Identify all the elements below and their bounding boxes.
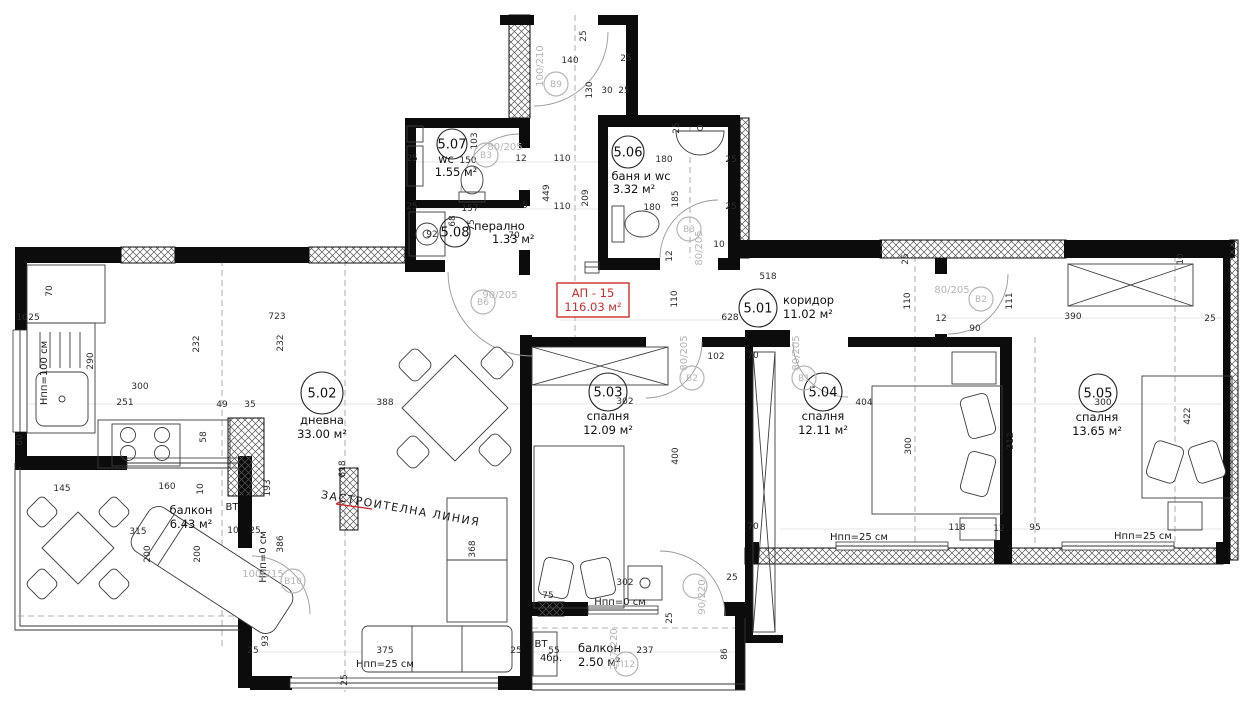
room-area: 1.33 м² (492, 232, 535, 246)
door-marker-id: B2 (686, 374, 698, 384)
room-name: дневна (300, 413, 344, 427)
dimension-label: 70 (45, 285, 55, 297)
room-name: перално (474, 219, 525, 233)
annotation-label: ВТ (226, 502, 240, 513)
dimension-label: 390 (1064, 312, 1081, 322)
door-marker-size: 80/205 (679, 335, 690, 370)
dimension-label: 368 (468, 540, 478, 557)
dimension-label: 25 (247, 646, 258, 656)
dimension-label: 90 (969, 324, 981, 334)
annotation-label: Нпп=25 см (830, 532, 888, 543)
door-marker-size: 227/220 (609, 628, 620, 670)
dimension-label: 25 (340, 674, 350, 685)
dimension-label: 386 (276, 535, 286, 552)
dimension-label: 10 (713, 240, 725, 250)
dimension-label: 209 (581, 189, 591, 206)
dimension-label: 110 (670, 290, 680, 307)
door-marker-size: 90/205 (482, 290, 517, 301)
dimension-label: 290 (86, 352, 96, 369)
room-number: 5.02 (308, 387, 337, 402)
dimension-label: 111 (1005, 292, 1015, 309)
floor-plan-drawing: АП - 15 116.03 м² 5186281101401303025252… (0, 0, 1240, 720)
room-name: балкон (170, 503, 213, 517)
dimension-label: 315 (129, 527, 146, 537)
dimension-label: 110 (553, 202, 570, 212)
dimension-label: 25 (406, 202, 417, 212)
dimension-label: 60 (15, 434, 25, 446)
dimension-label: 10 (1176, 253, 1186, 265)
dimension-label: 75 (542, 591, 553, 601)
room-area: 12.11 м² (798, 423, 848, 437)
dimension-label: 25 (406, 154, 417, 164)
annotation-label: Нпп=25 см (356, 659, 414, 670)
apartment-area: 116.03 м² (564, 300, 621, 314)
door-marker-size: 90/220 (697, 579, 708, 614)
dimension-label: 95 (1029, 523, 1040, 533)
dimension-label: 10 (227, 526, 239, 536)
dimension-label: 400 (671, 447, 681, 464)
dimension-label: 25 (672, 122, 682, 133)
dimension-label: 58 (199, 431, 209, 443)
dimension-label: 300 (904, 437, 914, 454)
door-marker-id: B2 (975, 295, 987, 305)
dimension-label: 25 (901, 253, 911, 264)
dimension-label: 232 (192, 335, 202, 352)
dimension-label: 312 (1006, 432, 1016, 449)
dimension-label: 140 (561, 56, 578, 66)
door-marker-size: 80/205 (694, 230, 705, 265)
door-marker-id: B1 (798, 374, 810, 384)
dimension-label: 30 (601, 86, 613, 96)
room-number: 5.05 (1084, 387, 1113, 402)
dimension-label: 185 (671, 190, 681, 207)
room-number: 5.04 (809, 386, 838, 401)
dimension-label: 25 (665, 612, 675, 623)
room-name: спалня (802, 409, 845, 423)
annotation-label: Нпп=100 см (39, 341, 50, 405)
dimension-label: 193 (263, 479, 273, 496)
balcony-table (25, 495, 131, 601)
dimension-label: 12 (515, 154, 526, 164)
dimension-label: 12 (993, 524, 1004, 534)
dimension-label: 237 (636, 646, 653, 656)
dimension-label: 49 (216, 400, 228, 410)
dimension-label: 25 (725, 202, 736, 212)
dimension-label: 70 (747, 351, 759, 361)
wardrobes (532, 264, 1193, 632)
dimension-label: 110 (553, 154, 570, 164)
dimension-label: 70 (747, 522, 759, 532)
room-area: 6.43 м² (170, 517, 213, 531)
dimension-label: 25 (1204, 314, 1215, 324)
dimension-label: 628 (721, 313, 738, 323)
dimension-label: 102 (707, 352, 724, 362)
room-area: 33.00 м² (297, 427, 347, 441)
room-number: 5.07 (438, 138, 467, 153)
annotation-label: Нпп=25 см (1114, 531, 1172, 542)
room-name: баня и wc (611, 169, 670, 183)
room-number: 5.03 (594, 386, 623, 401)
dimension-label: 12 (935, 314, 946, 324)
door-marker-size: 100/210 (535, 45, 546, 87)
room-name: коридор (783, 293, 834, 307)
dimension-label: 25 (725, 155, 736, 165)
dimension-label: 110 (903, 292, 913, 309)
door-marker-size: 80/205 (934, 285, 969, 296)
dimension-label: 103 (470, 132, 480, 149)
dimension-label: 10 (16, 313, 28, 323)
room-area: 3.32 м² (613, 182, 656, 196)
dimension-label: 518 (759, 272, 776, 282)
dimension-label: 86 (720, 648, 730, 660)
dimension-label: 180 (643, 203, 660, 213)
dimension-label: 25 (620, 54, 631, 64)
room-area: 12.09 м² (583, 423, 633, 437)
room-area: 1.55 м² (435, 165, 478, 179)
dimension-label: 160 (158, 482, 175, 492)
room-name: wc (438, 152, 454, 166)
bed-5-04 (872, 352, 1002, 540)
room-name: спалня (587, 409, 630, 423)
door-marker-size: 100/215 (242, 569, 284, 580)
dimension-label: 300 (131, 382, 148, 392)
door-marker-size: 80/205 (487, 142, 522, 153)
door-marker-size: 80/205 (791, 335, 802, 370)
dimension-label: 200 (193, 545, 203, 562)
room-number: 5.08 (441, 226, 470, 241)
room-name: спалня (1076, 410, 1119, 424)
apartment-id: АП - 15 (572, 286, 615, 300)
dimension-label: 302 (616, 578, 633, 588)
dimension-label: 145 (53, 484, 70, 494)
annotation-label: Нпп=0 см (594, 597, 646, 608)
room-area: 13.65 м² (1072, 424, 1122, 438)
dimension-label: 118 (948, 523, 965, 533)
room-area: 11.02 м² (783, 307, 833, 321)
dimension-label: 723 (268, 312, 285, 322)
bed-5-05 (1142, 376, 1232, 530)
dimension-label: 618 (338, 460, 348, 477)
annotation-label: ВТ (535, 639, 549, 650)
dimension-label: 25 (579, 30, 589, 41)
dimension-label: 130 (585, 81, 595, 98)
dimension-label: 232 (276, 334, 286, 351)
dimension-label: 35 (244, 400, 255, 410)
dimension-label: 422 (1183, 407, 1193, 424)
dining-table (395, 345, 516, 471)
dimension-label: 10 (196, 483, 206, 495)
room-number: 5.06 (614, 146, 643, 161)
dimension-label: 388 (376, 398, 393, 408)
dimension-label: 5 (522, 201, 528, 211)
dimension-label: 449 (542, 184, 552, 201)
door-marker-id: B10 (284, 577, 302, 587)
apartment-label: АП - 15 116.03 м² (557, 283, 629, 317)
dimension-label: 93 (261, 635, 271, 646)
room-number: 5.01 (744, 302, 773, 317)
door-marker-id: B9 (550, 80, 562, 90)
dimension-label: 180 (655, 155, 672, 165)
dimension-label: 25 (618, 86, 629, 96)
bed-5-03 (534, 446, 662, 608)
floor-plan-canvas: АП - 15 116.03 м² 5186281101401303025252… (0, 0, 1240, 720)
dimension-label: 375 (376, 646, 393, 656)
dimension-label: 92 (426, 230, 437, 240)
dimension-label: 404 (855, 398, 872, 408)
dimension-label: 25 (726, 573, 737, 583)
dimension-label: 200 (143, 545, 153, 562)
dimension-label: 157 (461, 204, 478, 214)
dimension-label: 251 (116, 398, 133, 408)
dimension-label: 25 (510, 646, 521, 656)
dimension-label: 12 (665, 250, 675, 261)
dimension-label: 25 (28, 313, 39, 323)
annotation-label: 4бр. (540, 653, 562, 664)
